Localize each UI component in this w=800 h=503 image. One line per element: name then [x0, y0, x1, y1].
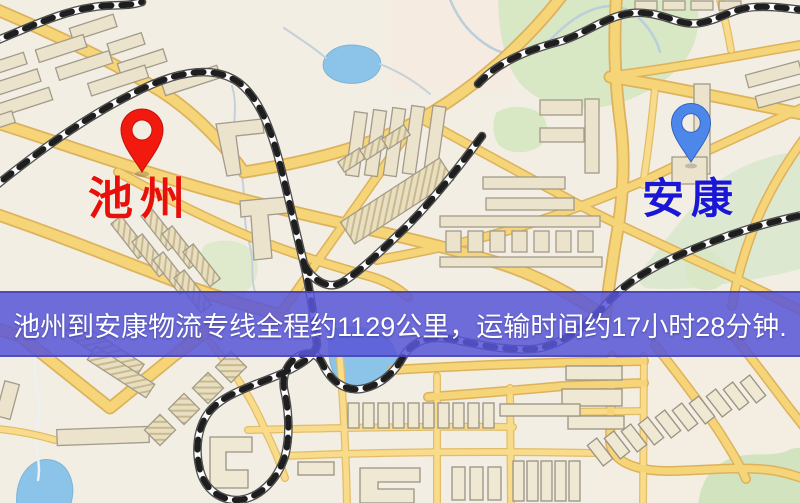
route-info-banner: 池州到安康物流专线全程约1129公里，运输时间约17小时28分钟. — [0, 291, 800, 357]
destination-pin-shadow — [685, 164, 697, 169]
route-banner-text: 池州到安康物流专线全程约1129公里，运输时间约17小时28分钟. — [13, 305, 787, 344]
map-view: 池州 安康 池州到安康物流专线全程约1129公里，运输时间约17小时28分钟. — [0, 0, 800, 503]
destination-city-label: 安康 — [642, 179, 740, 221]
origin-city-label: 池州 — [88, 177, 192, 222]
map-canvas[interactable] — [0, 0, 800, 503]
